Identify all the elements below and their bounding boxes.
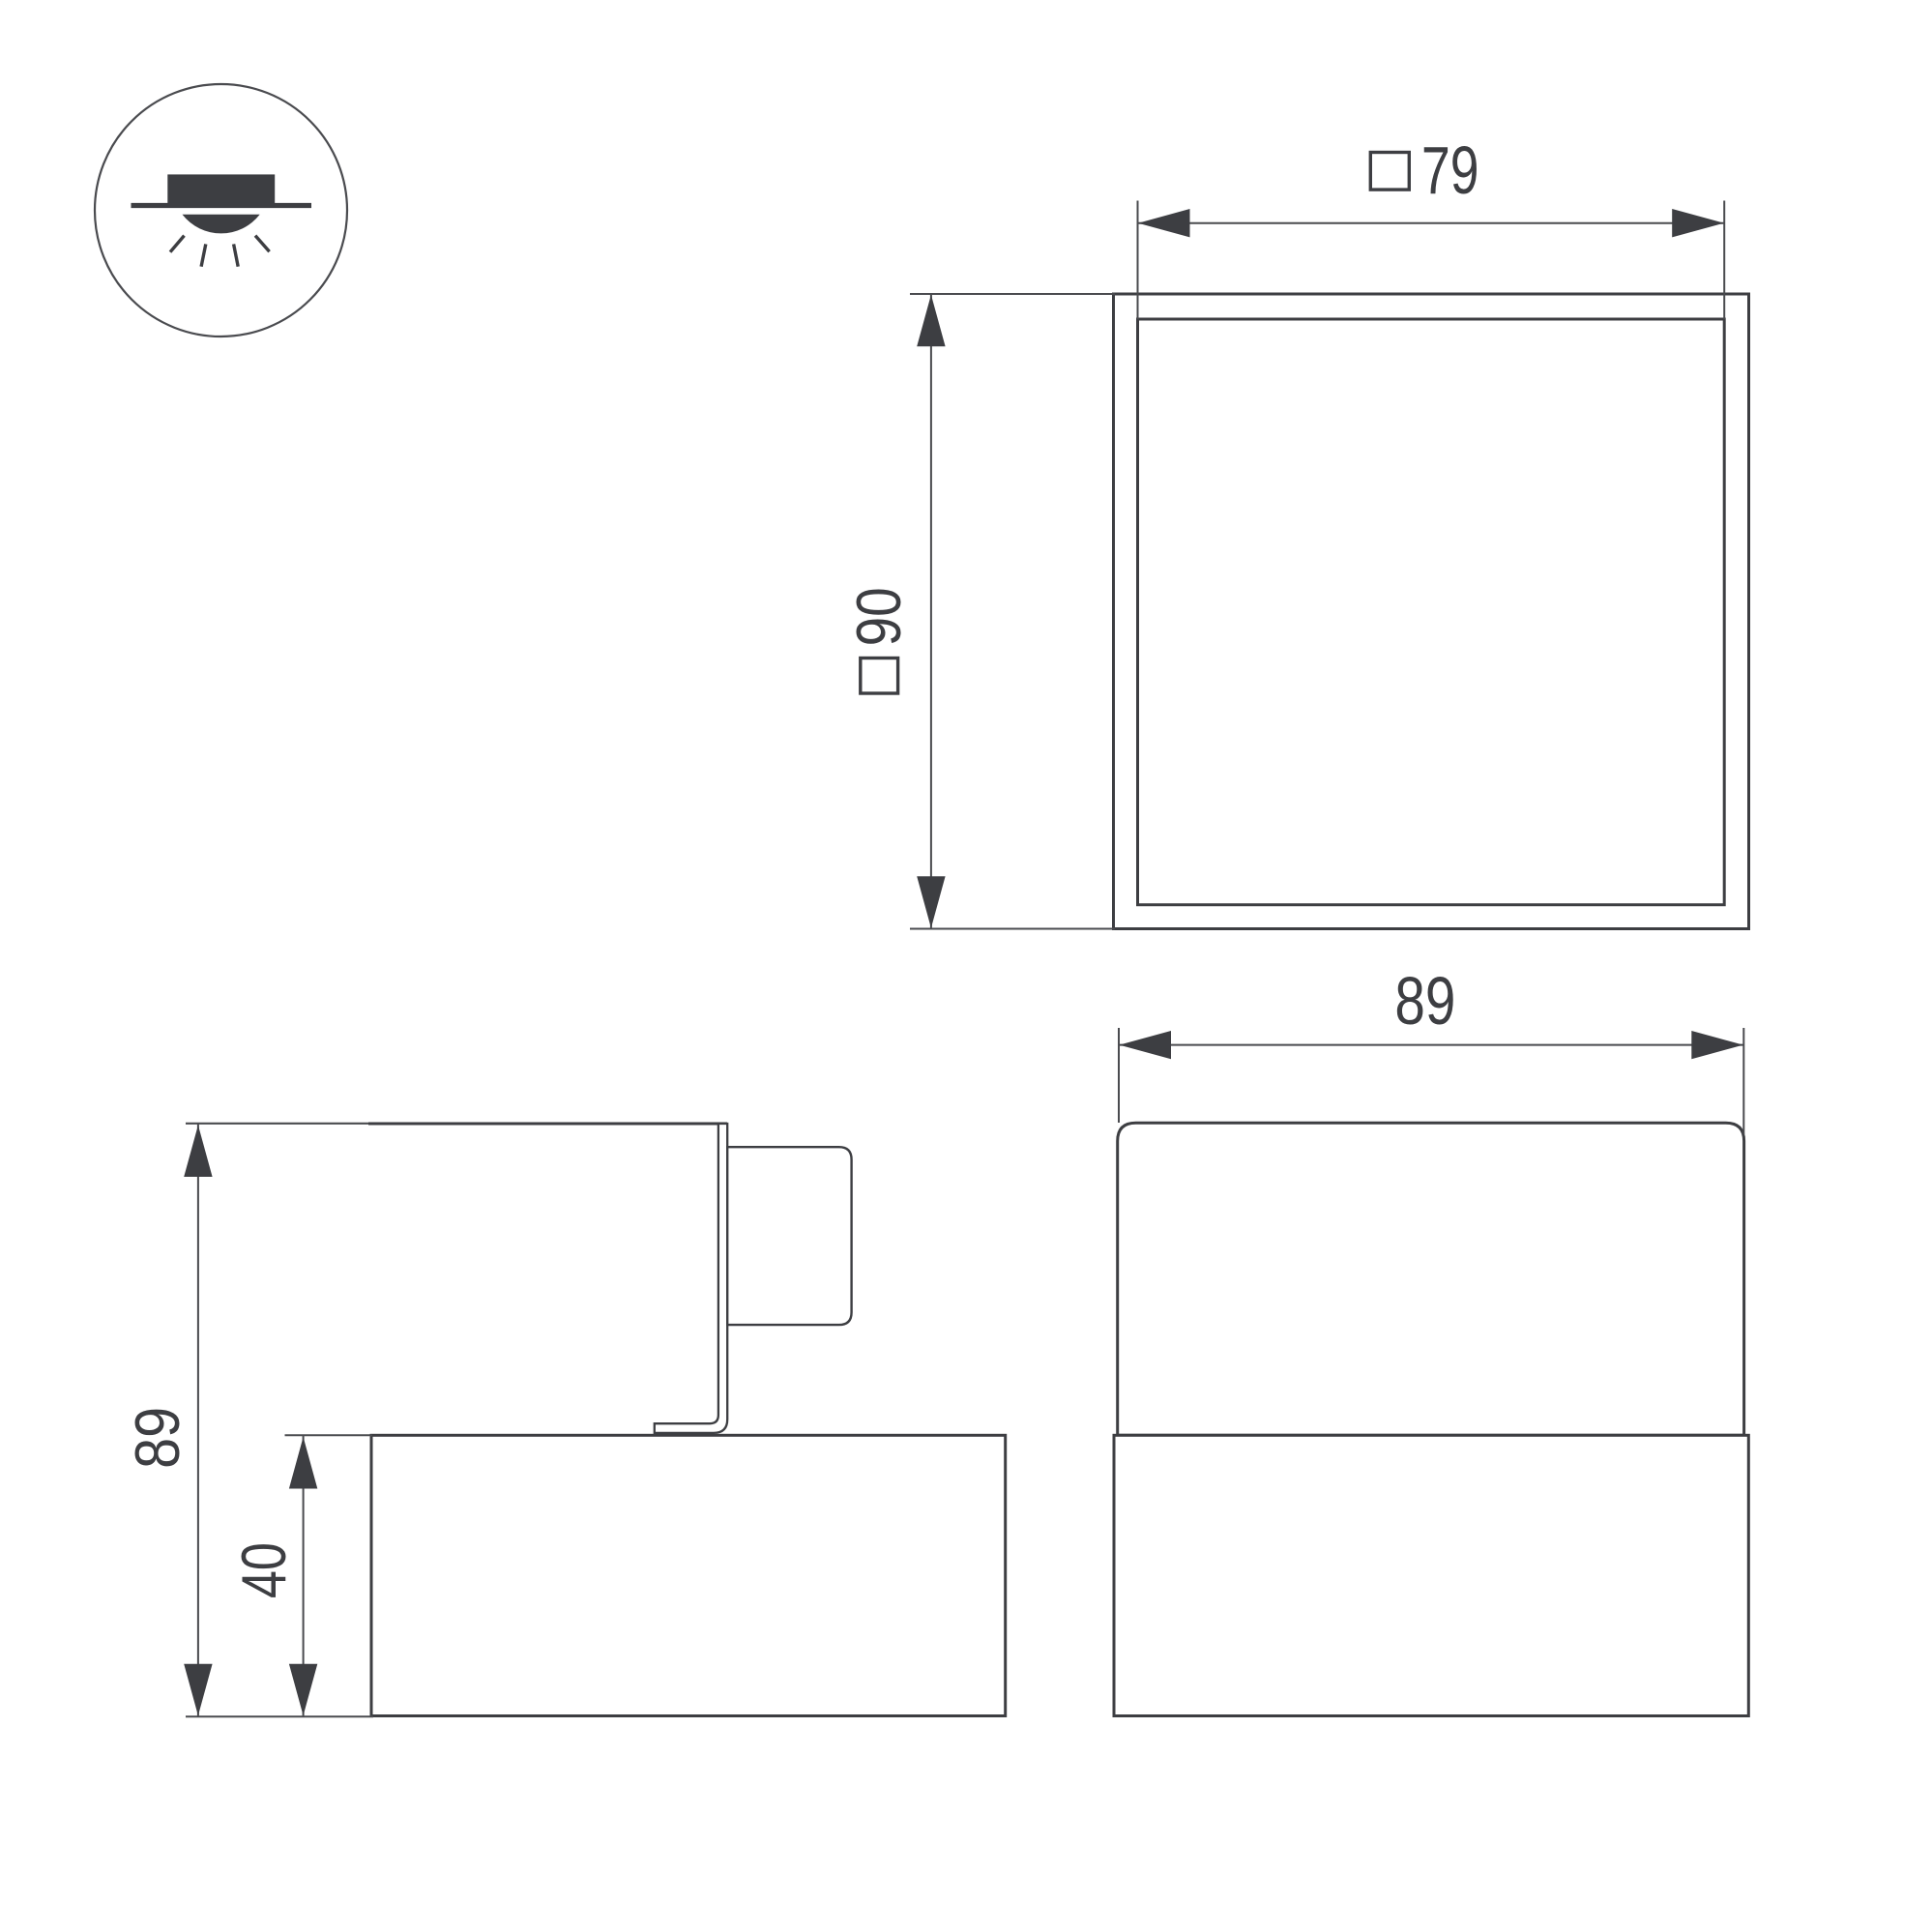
svg-text:89: 89 — [1394, 963, 1455, 1039]
svg-text:79: 79 — [1421, 132, 1479, 208]
svg-text:40: 40 — [228, 1542, 299, 1598]
svg-text:89: 89 — [122, 1407, 192, 1469]
svg-text:90: 90 — [843, 587, 914, 646]
